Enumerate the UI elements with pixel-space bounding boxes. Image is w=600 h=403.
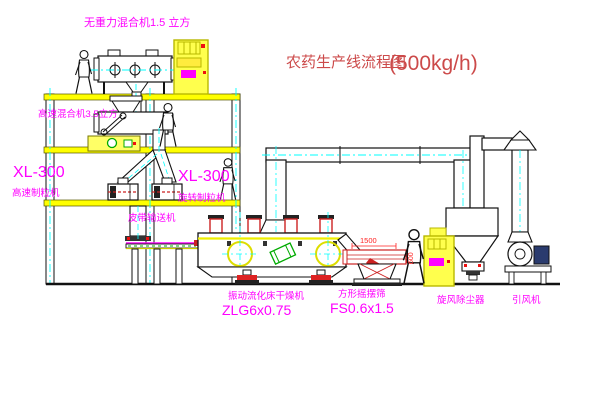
title-capacity: (500kg/h) [389, 52, 478, 75]
indicator-light-icon [447, 260, 450, 263]
indicator-light-icon [201, 44, 205, 48]
motor-icon [108, 139, 117, 148]
label-sieve-name: 方形摇摆筛 [338, 288, 386, 300]
fan-scroll [508, 242, 532, 266]
cad-drawing: 无重力混合机1.5 立方 高速混合机3.5立方 XL-300 高速制粒机 XL-… [0, 0, 600, 403]
process-flow-diagram: 无重力混合机1.5 立方 高速混合机3.5立方 XL-300 高速制粒机 XL-… [0, 0, 600, 403]
label-belt-conveyor: 皮带输送机 [128, 212, 176, 224]
packing-cabinet-top [174, 40, 208, 94]
cabinet-text-mark [181, 70, 196, 78]
label-granulator-right-name: 旋转制粒机 [178, 192, 226, 204]
floor-2 [44, 147, 240, 153]
label-high-speed-mixer: 高速混合机3.5立方 [38, 108, 118, 120]
dimension-sieve-height: 600 [408, 252, 415, 264]
label-draft-fan: 引风机 [512, 294, 541, 306]
cabinet-text-mark [429, 258, 444, 266]
label-gravity-mixer: 无重力混合机1.5 立方 [84, 15, 190, 29]
label-granulator-right-model: XL-300 [178, 168, 230, 185]
title-text: 农药生产线流程图 [286, 54, 406, 71]
label-granulator-left-model: XL-300 [13, 164, 65, 181]
label-granulator-left-name: 高速制粒机 [12, 187, 60, 199]
dryer-foot-pad [237, 275, 257, 280]
label-dryer-name: 振动流化床干燥机 [228, 290, 305, 302]
packing-cabinet-ground [424, 228, 454, 286]
label-dryer-model: ZLG6x0.75 [222, 302, 291, 318]
indicator-light-icon [203, 71, 206, 74]
cyclone-body [446, 208, 498, 236]
label-sieve-model: FS0.6x1.5 [330, 300, 394, 316]
label-cyclone: 旋风除尘器 [437, 294, 485, 306]
fan-motor [534, 246, 549, 264]
dryer-foot-pad [311, 275, 331, 280]
dimension-sieve-length: 1500 [360, 236, 377, 245]
